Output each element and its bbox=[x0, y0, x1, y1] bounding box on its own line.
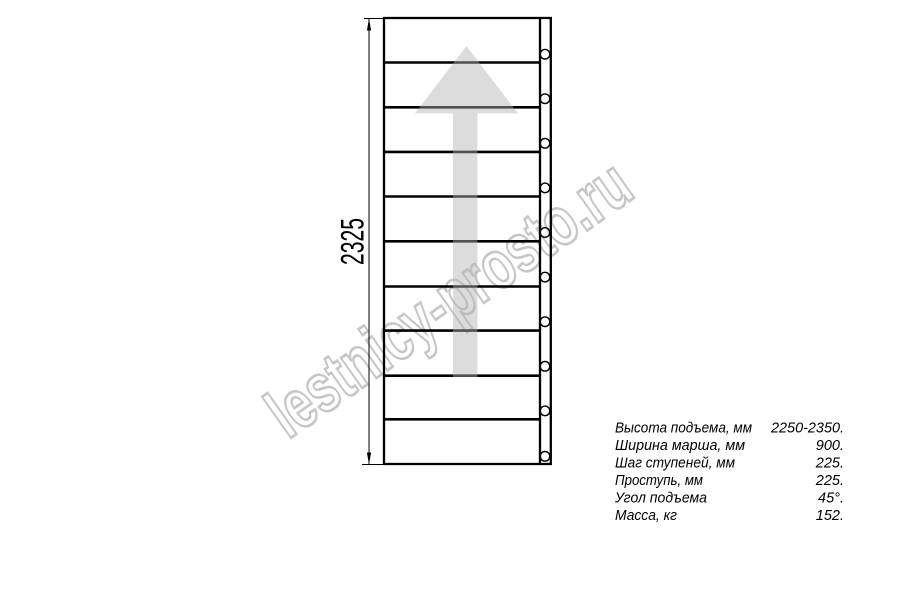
svg-text:225.: 225. bbox=[815, 473, 844, 489]
svg-text:152.: 152. bbox=[816, 508, 844, 524]
svg-text:Ширина марша, мм: Ширина марша, мм bbox=[615, 438, 745, 454]
svg-text:Проступь, мм: Проступь, мм bbox=[615, 473, 703, 489]
svg-text:Шаг ступеней, мм: Шаг ступеней, мм bbox=[615, 455, 735, 471]
svg-text:Угол подъема: Угол подъема bbox=[614, 490, 707, 506]
svg-text:Масса, кг: Масса, кг bbox=[615, 508, 677, 524]
svg-text:45°.: 45°. bbox=[818, 490, 844, 506]
svg-text:900.: 900. bbox=[816, 438, 844, 454]
svg-text:2250-2350.: 2250-2350. bbox=[770, 420, 844, 436]
svg-text:225.: 225. bbox=[815, 455, 844, 471]
svg-text:Высота подъема, мм: Высота подъема, мм bbox=[615, 420, 752, 436]
svg-text:2325: 2325 bbox=[335, 218, 371, 265]
